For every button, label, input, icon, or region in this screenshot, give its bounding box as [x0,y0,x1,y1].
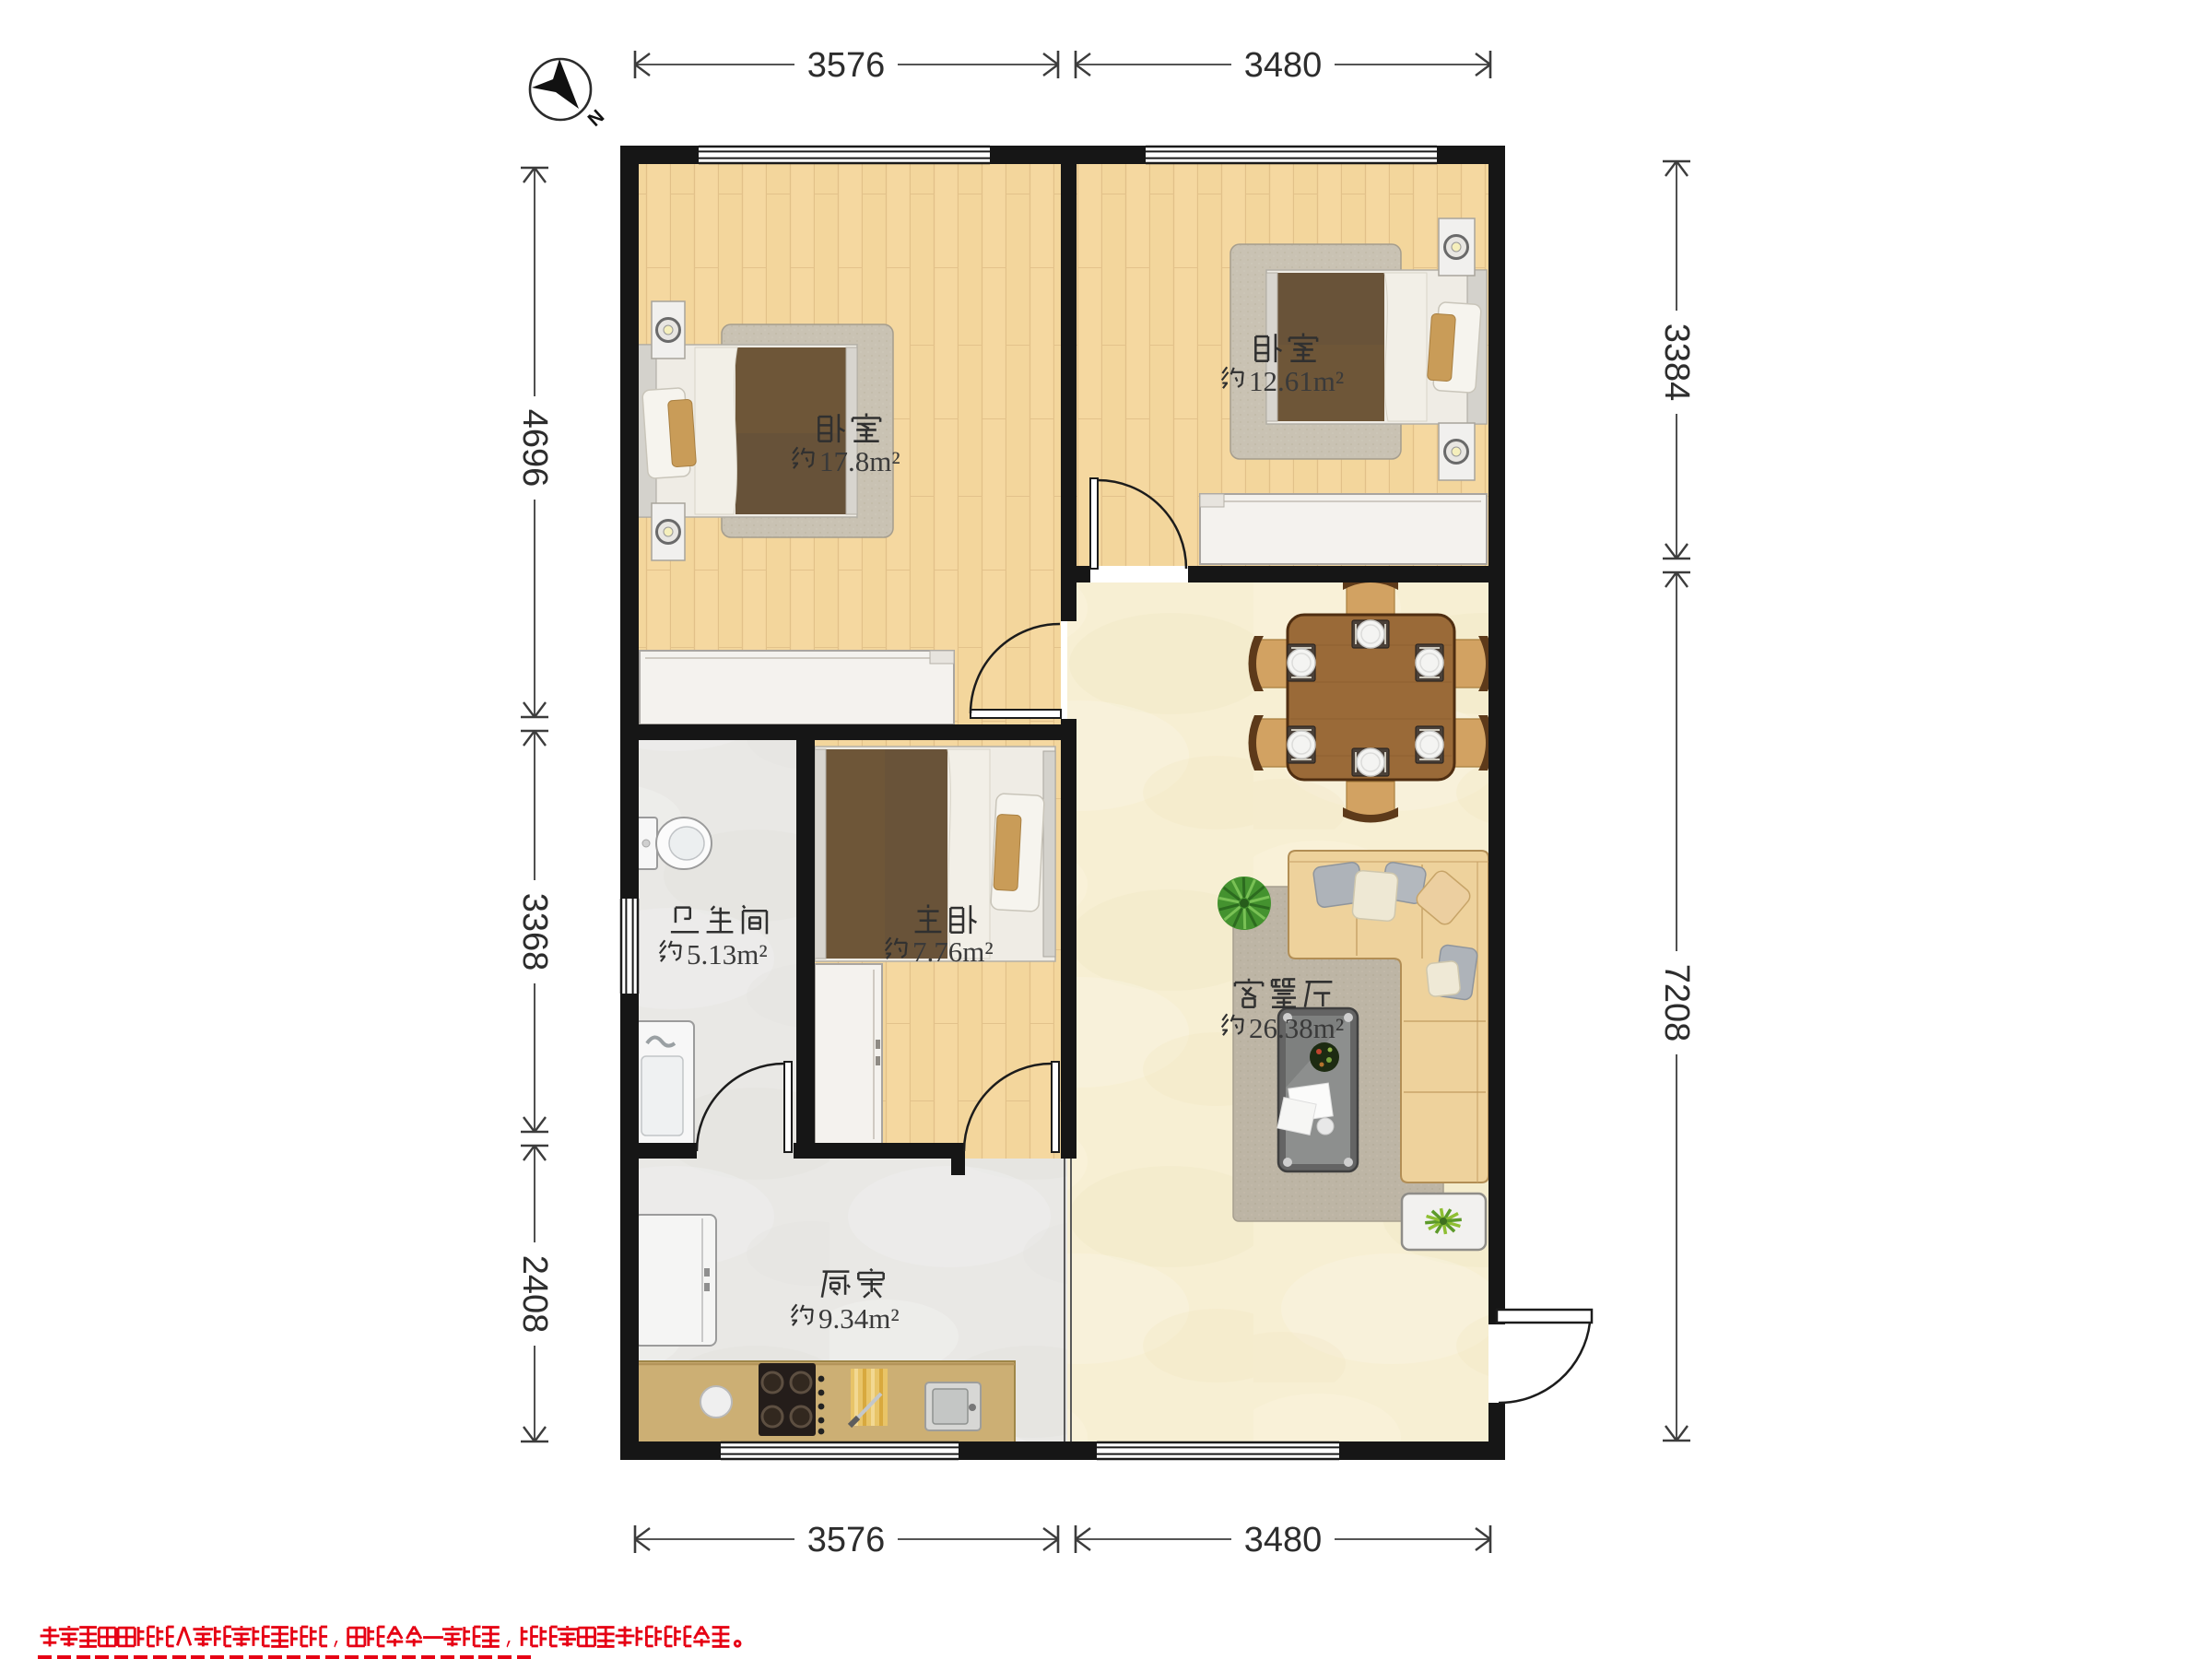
svg-text:9.34m²: 9.34m² [818,1302,900,1335]
svg-text:4696: 4696 [515,409,554,488]
svg-text:17.8m²: 17.8m² [819,445,900,477]
svg-text:26.38m²: 26.38m² [1249,1012,1344,1044]
svg-text:7208: 7208 [1657,964,1696,1042]
svg-text:7.76m²: 7.76m² [912,935,994,968]
svg-text:3480: 3480 [1244,46,1323,85]
svg-text:2408: 2408 [515,1255,554,1334]
svg-text:3576: 3576 [807,1521,886,1559]
svg-text:5.13m²: 5.13m² [687,938,768,971]
svg-text:3576: 3576 [807,46,886,85]
svg-text:3480: 3480 [1244,1521,1323,1559]
svg-text:3368: 3368 [515,893,554,971]
svg-text:3384: 3384 [1657,324,1696,402]
svg-text:12.61m²: 12.61m² [1249,365,1344,397]
